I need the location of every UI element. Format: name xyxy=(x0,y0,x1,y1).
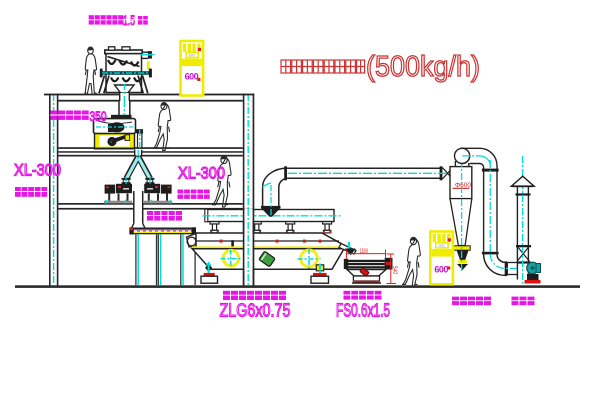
svg-text:350: 350 xyxy=(90,108,107,124)
svg-text:XL-300: XL-300 xyxy=(14,161,61,180)
svg-text:FS0.6x1.5: FS0.6x1.5 xyxy=(336,301,390,321)
svg-text:540: 540 xyxy=(391,266,397,275)
svg-text:XL-300: XL-300 xyxy=(178,164,225,183)
svg-text:600: 600 xyxy=(434,265,448,275)
svg-text:600: 600 xyxy=(185,72,199,82)
svg-text:ZLG6x0.75: ZLG6x0.75 xyxy=(220,301,291,321)
svg-text:1500: 1500 xyxy=(360,249,369,255)
svg-text:(500kg/h): (500kg/h) xyxy=(366,51,480,83)
